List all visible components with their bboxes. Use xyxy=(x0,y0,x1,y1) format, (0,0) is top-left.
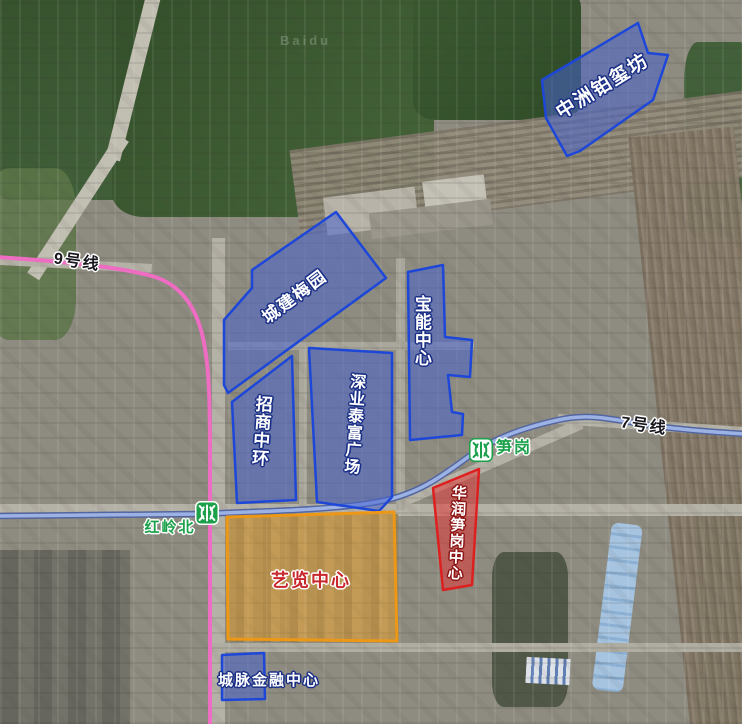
metro-line-9[interactable] xyxy=(0,257,210,724)
station-label-honglingbei: 红岭北 xyxy=(144,520,195,536)
area-label-chengmai-financial-center: 城脉金融中心 xyxy=(218,673,320,689)
area-label-baoneng-center: 宝能中心 xyxy=(412,295,430,367)
map-watermark: Baidu xyxy=(280,33,331,48)
map-annotation-overlay xyxy=(0,0,742,724)
metro-logo-icon xyxy=(195,501,219,525)
station-label-sungang: 笋岗 xyxy=(496,441,532,458)
satellite-map[interactable]: 中洲铂玺坊 城建梅园 宝能中心 深业泰富广场 招商中环 艺览中心 华润笋岗中心 … xyxy=(0,0,742,724)
station-icon-honglingbei[interactable] xyxy=(195,501,219,525)
area-label-yilan-center: 艺览中心 xyxy=(271,572,351,591)
station-icon-sungang[interactable] xyxy=(469,438,493,462)
area-label-zhaoshang-zhonghuan: 招商中环 xyxy=(249,394,272,467)
metro-logo-icon xyxy=(469,438,493,462)
